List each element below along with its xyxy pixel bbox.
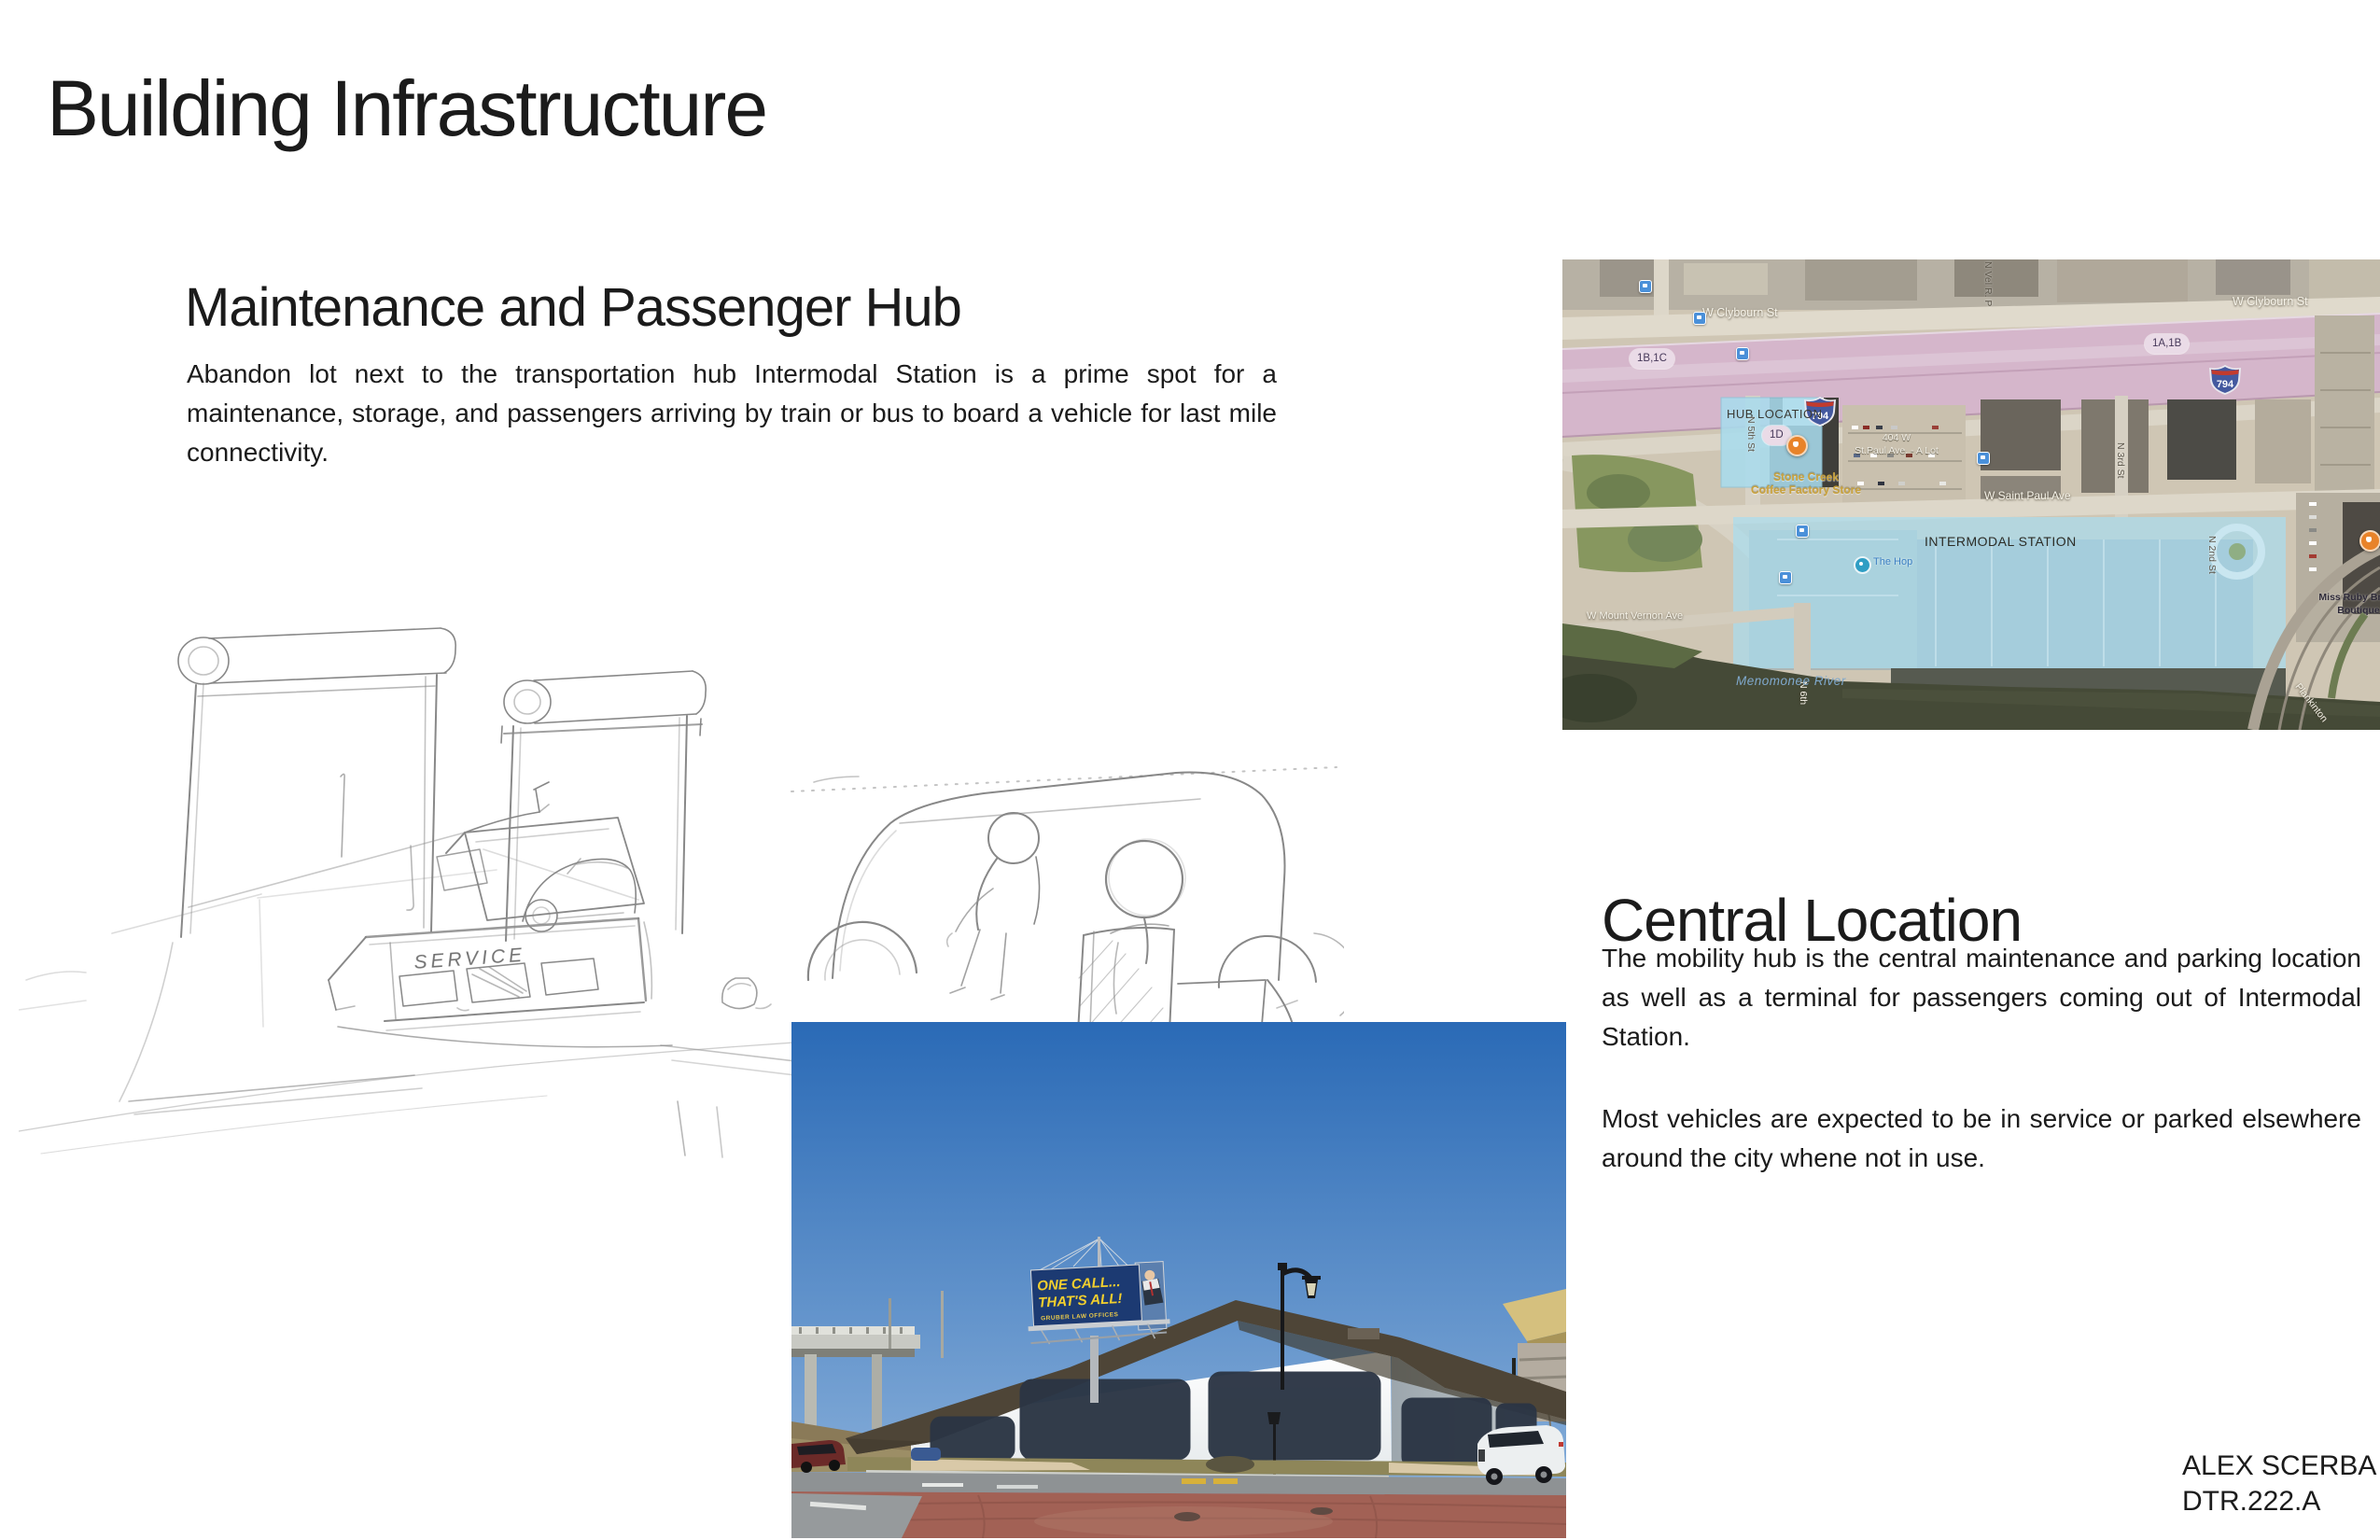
street-label-clybourn-left: W Clybourn St xyxy=(1702,306,1778,319)
satellite-map: W Clybourn St W Clybourn St 1B,1C 1A,1B … xyxy=(1562,259,2380,730)
sketch-service-label: SERVICE xyxy=(413,945,526,973)
street-label-mount-vernon: W Mount Vernon Ave xyxy=(1587,610,1683,622)
stone-creek-label: Stone Creek Coffee Factory Store xyxy=(1745,470,1867,497)
site-photo-art: ONE CALL... THAT'S ALL! GRUBER LAW OFFIC… xyxy=(791,1022,1566,1538)
central-paragraph-1: The mobility hub is the central maintena… xyxy=(1602,939,2361,1057)
poi-marker-icon xyxy=(2359,530,2380,552)
transit-stop-icon xyxy=(1736,347,1749,360)
street-label-n2nd: N 2nd St xyxy=(2206,536,2218,574)
site-photo: ONE CALL... THAT'S ALL! GRUBER LAW OFFIC… xyxy=(791,1022,1566,1538)
street-label-nvel: N Vel R. P xyxy=(1982,261,1994,306)
hub-section-heading: Maintenance and Passenger Hub xyxy=(185,276,961,339)
boutique-label: Miss Ruby Bridal Boutique xyxy=(2307,592,2380,617)
transit-stop-icon xyxy=(1693,312,1706,325)
street-label-clybourn-right: W Clybourn St xyxy=(2233,295,2308,308)
street-label-n5th: N 5th St xyxy=(1745,416,1757,452)
transit-stop-icon xyxy=(1779,571,1792,584)
credit-id: DTR.222.A xyxy=(2182,1484,2376,1519)
coffee-shop-marker-icon xyxy=(1786,435,1808,456)
central-paragraph-2: Most vehicles are expected to be in serv… xyxy=(1602,1099,2361,1178)
transit-stop-icon xyxy=(1639,280,1652,293)
transit-stop-icon xyxy=(1977,452,1990,465)
transit-stop-icon xyxy=(1796,525,1809,538)
map-art xyxy=(1562,259,2380,730)
parking-lot-label: 404 W St.Paul Ave. - A Lot xyxy=(1839,431,1954,457)
interstate-794-shield-right: 794 xyxy=(2208,364,2242,396)
hub-location-label: HUB LOCATION xyxy=(1727,407,1823,421)
credit-name: ALEX SCERBA xyxy=(2182,1449,2376,1484)
exit-badge-1b1c: 1B,1C xyxy=(1630,349,1674,369)
street-label-n3rd: N 3rd St xyxy=(2115,442,2126,479)
street-label-saint-paul: W Saint Paul Ave xyxy=(1984,489,2071,502)
the-hop-label: The Hop xyxy=(1873,556,1912,567)
central-section-body: The mobility hub is the central maintena… xyxy=(1602,939,2361,1178)
credit-block: ALEX SCERBA DTR.222.A xyxy=(2182,1449,2376,1519)
intermodal-station-label: INTERMODAL STATION xyxy=(1925,534,2077,549)
the-hop-marker-icon xyxy=(1854,556,1871,574)
river-label: Menomonee River xyxy=(1736,674,1846,688)
hub-section-body: Abandon lot next to the transportation h… xyxy=(187,355,1277,472)
poster-page: Building Infrastructure Maintenance and … xyxy=(0,0,2380,1540)
page-title: Building Infrastructure xyxy=(47,63,766,154)
svg-text:794: 794 xyxy=(2217,379,2234,390)
exit-badge-1a1b: 1A,1B xyxy=(2145,334,2189,354)
